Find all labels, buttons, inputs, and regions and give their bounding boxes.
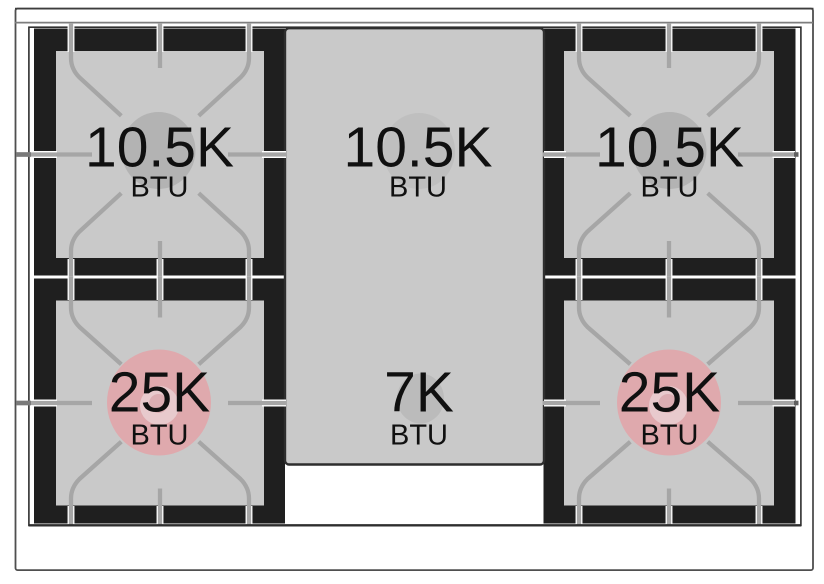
svg-text:25K: 25K bbox=[619, 361, 720, 425]
svg-text:10.5K: 10.5K bbox=[85, 116, 234, 180]
svg-text:10.5K: 10.5K bbox=[595, 116, 744, 180]
svg-text:BTU: BTU bbox=[131, 420, 189, 452]
svg-text:BTU: BTU bbox=[390, 420, 448, 452]
svg-text:10.5K: 10.5K bbox=[344, 116, 493, 180]
svg-text:BTU: BTU bbox=[131, 172, 189, 204]
svg-text:7K: 7K bbox=[384, 361, 454, 425]
svg-text:BTU: BTU bbox=[389, 172, 447, 204]
svg-text:25K: 25K bbox=[109, 361, 210, 425]
svg-text:BTU: BTU bbox=[641, 172, 699, 204]
svg-text:BTU: BTU bbox=[641, 420, 699, 452]
